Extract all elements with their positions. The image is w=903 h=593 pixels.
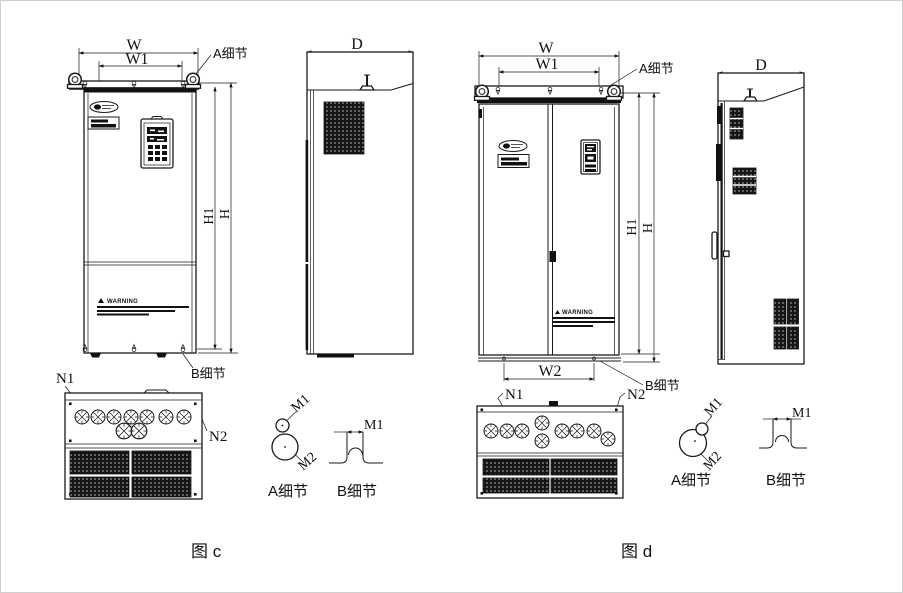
figc-n1-label: N1 [56, 371, 74, 387]
warning-title: WARNING [107, 299, 138, 305]
figd-side-vent-grilles-lower [774, 299, 799, 349]
figd-dim-label-h: H [641, 223, 656, 233]
figd-detail-b-title: B细节 [766, 472, 806, 489]
figd-side-door-edge [721, 103, 723, 359]
figc-detail-b-title: B细节 [337, 483, 377, 500]
figc-dim-label-h: H [218, 209, 233, 219]
figd-detail-b-slot-arc [776, 436, 789, 443]
figd-hinge-mark [479, 109, 483, 118]
figc-bottom-view: N1 N2 [56, 371, 227, 499]
figc-side-view: D [305, 36, 414, 358]
figd-dim-label-d: D [755, 57, 767, 74]
figc-detail-a-m1: M1 [289, 392, 313, 416]
figc-detail-a-callout: A细节 [213, 46, 248, 61]
keypad-display [585, 144, 596, 152]
figd-dim-label-w2: W2 [538, 363, 561, 380]
figd-detail-a-title: A细节 [671, 472, 711, 489]
figd-side-vent-grille-top [730, 108, 743, 139]
figc-side-outline [307, 52, 413, 354]
figd-lifting-eye-left [475, 85, 490, 100]
figd-detail-a-hole-small [696, 423, 708, 435]
figc-side-door-edge [306, 140, 309, 350]
figd-lifting-eye-right [607, 85, 622, 100]
figc-foot-left [90, 353, 101, 358]
figd-detail-b: M1 B细节 [759, 406, 811, 489]
figc-detail-b-slot-arc [349, 448, 363, 455]
figc-detail-a: M1 M2 A细节 [268, 392, 320, 500]
figd-detail-b-leader [600, 361, 643, 385]
figc-detail-b: M1 B细节 [329, 418, 383, 500]
drawing-canvas: W W1 A细节 [0, 0, 903, 593]
figd-n1-label: N1 [505, 387, 523, 403]
figc-front-view: W W1 A细节 [68, 37, 248, 381]
figc-detail-b-m1: M1 [364, 418, 383, 433]
figc-side-vent-grille [324, 102, 364, 154]
technical-drawing: W W1 A细节 [1, 1, 903, 593]
figd-bottom-view: N1 N2 [477, 387, 645, 498]
figc-dim-label-w1: W1 [125, 51, 148, 68]
figd-n2-label: N2 [627, 387, 645, 403]
figure-c: W W1 A细节 [56, 36, 413, 561]
figc-lifting-eye-right [186, 73, 201, 88]
figd-detail-b-callout: B细节 [645, 378, 680, 393]
figd-front-view: W W1 A细节 [475, 40, 680, 393]
figd-detail-a: M1 M2 A细节 [671, 395, 726, 489]
figc-caption: 图 c [191, 542, 222, 561]
figc-dim-label-d: D [351, 36, 363, 53]
figd-side-vent-grille-mid [733, 168, 756, 194]
keypad-panel [141, 117, 173, 169]
figd-side-hinge-top [717, 106, 721, 124]
figd-dim-label-w1: W1 [535, 56, 558, 73]
figc-side-base [317, 354, 354, 358]
figc-detail-b-callout: B细节 [191, 366, 226, 381]
figc-dim-label-h1: H1 [202, 207, 217, 224]
figc-lifting-eye-left [68, 73, 83, 88]
figd-side-door-handle [712, 232, 717, 259]
figc-detail-b-leader [183, 354, 193, 368]
door-handle [550, 251, 557, 262]
figc-foot-right [156, 353, 167, 358]
figd-detail-a-callout: A细节 [639, 61, 674, 76]
keypad-buttons [148, 145, 167, 161]
figd-caption: 图 d [621, 542, 652, 561]
figd-detail-b-m1: M1 [792, 406, 811, 421]
figd-detail-a-m2: M2 [701, 449, 725, 473]
figd-dim-label-h1: H1 [625, 218, 640, 235]
figc-detail-a-title: A细节 [268, 483, 308, 500]
figc-n2-label: N2 [209, 429, 227, 445]
figd-detail-a-m1: M1 [702, 395, 726, 419]
figd-side-view: D [712, 57, 804, 364]
figure-d: W W1 A细节 [475, 40, 812, 561]
figc-detail-a-m2: M2 [296, 450, 320, 474]
keypad-panel [581, 140, 600, 174]
warning-title: WARNING [562, 310, 593, 316]
figd-side-hinge-mid [716, 144, 721, 181]
figd-dim-label-w: W [538, 40, 554, 57]
